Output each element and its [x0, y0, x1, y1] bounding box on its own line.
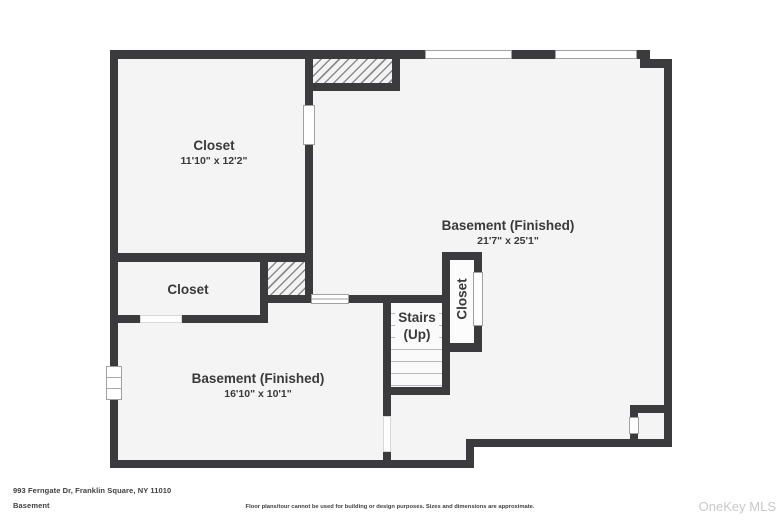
- room-dims: 21'7" x 25'1": [442, 234, 575, 248]
- window-icon-closet-top: [303, 105, 315, 145]
- disclaimer-text: Floor plans/tour cannot be used for buil…: [246, 504, 535, 510]
- wall-middle-1: [260, 295, 311, 303]
- room-sub: (Up): [398, 326, 436, 343]
- wall-closet-mid-bottom-1: [110, 315, 140, 323]
- room-name: Basement (Finished): [442, 217, 575, 234]
- room-label-stairs: Stairs (Up): [395, 309, 439, 343]
- wall-closet-top-right-2: [305, 145, 313, 303]
- watermark-text: OneKey MLS: [699, 499, 776, 514]
- room-name: Closet: [167, 281, 208, 298]
- room-name: Basement (Finished): [192, 370, 325, 387]
- wall-top-2: [512, 50, 555, 59]
- chase-hatch-area-middle: [268, 262, 305, 295]
- wall-hatch-bottom: [305, 83, 400, 91]
- floor-name-text: Basement: [13, 501, 50, 510]
- wall-stairs-left-stub: [383, 452, 391, 460]
- room-label-closet-mid: Closet: [167, 281, 208, 298]
- wall-top-3: [637, 50, 650, 59]
- window-icon-left-wall: [106, 366, 122, 400]
- address-text: 993 Ferngate Dr, Franklin Square, NY 110…: [13, 486, 171, 495]
- room-name: Stairs: [398, 309, 436, 326]
- floor-cutout-bottom-right: [474, 447, 674, 469]
- wall-middle-2: [349, 295, 450, 303]
- room-label-basement-right: Basement (Finished) 21'7" x 25'1": [442, 217, 575, 248]
- door-opening-closet-mid: [140, 315, 182, 323]
- wall-closet-mid-right: [260, 253, 268, 323]
- floorplan-page: Closet 11'10" x 12'2" Basement (Finished…: [0, 0, 780, 520]
- window-icon-closet-vert: [473, 272, 483, 326]
- wall-stairs-bottom: [391, 387, 450, 395]
- wall-closet-vert-right-1: [474, 252, 482, 273]
- wall-closet-top-bottom: [110, 253, 313, 262]
- window-icon-top-2: [555, 50, 637, 59]
- wall-bottom-left: [110, 460, 474, 468]
- wall-top-1: [110, 50, 425, 59]
- window-icon-top-1: [425, 50, 512, 59]
- wall-closet-top-right-1: [305, 50, 313, 107]
- wall-closet-mid-bottom-2: [182, 315, 268, 323]
- door-opening-stairs: [383, 416, 391, 452]
- room-label-closet-vertical: Closet: [455, 278, 470, 319]
- window-icon-notch: [629, 417, 639, 434]
- wall-closet-vert-bottom: [442, 343, 482, 352]
- room-dims: 16'10" x 10'1": [192, 387, 325, 401]
- wall-bottom-right: [466, 439, 672, 447]
- stair-hatch-area-top: [313, 59, 392, 84]
- wall-stairs-left: [383, 295, 391, 417]
- room-dims: 11'10" x 12'2": [181, 154, 248, 168]
- wall-stairs-right: [442, 252, 450, 390]
- room-label-basement-left: Basement (Finished) 16'10" x 10'1": [192, 370, 325, 401]
- window-icon-middle-wall: [311, 294, 349, 304]
- room-name: Closet: [181, 137, 248, 154]
- wall-right: [664, 60, 672, 447]
- room-label-closet-top: Closet 11'10" x 12'2": [181, 137, 248, 168]
